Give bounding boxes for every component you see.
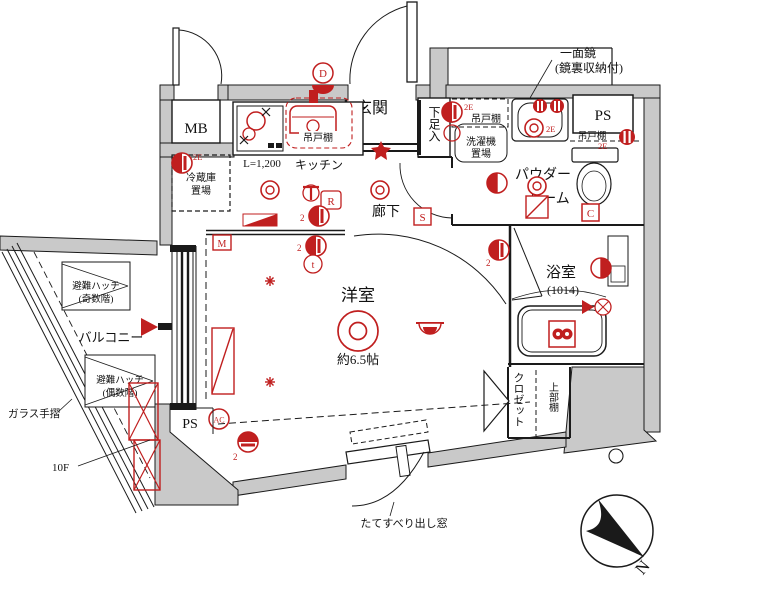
closet-folding-door bbox=[484, 371, 509, 431]
s-mark: S bbox=[419, 212, 425, 224]
fridge-outlet bbox=[172, 153, 192, 173]
wall-mb-top-left bbox=[160, 85, 174, 100]
window-cap-top bbox=[170, 245, 196, 252]
floor-plan: MB 玄関 下足入 廊下 bbox=[0, 0, 766, 612]
hatch-odd: 避難ハッチ (奇数階) bbox=[62, 262, 130, 310]
wall-right bbox=[644, 98, 660, 432]
kitchen-light bbox=[261, 181, 279, 199]
room-outlet-top-group: 2 t bbox=[297, 236, 326, 273]
toilet-outlet-2e: 2E bbox=[598, 141, 607, 151]
ac-unit bbox=[212, 328, 234, 394]
room-outlet-top bbox=[306, 236, 326, 256]
shoe-cabinet-face bbox=[417, 100, 421, 155]
balcony-direction-triangle bbox=[141, 318, 158, 336]
wall-bottom-band-left bbox=[233, 465, 346, 496]
window-cap-bottom bbox=[170, 403, 196, 410]
fridge-outlet-2e: 2E bbox=[193, 152, 202, 162]
kitchen-label: キッチン bbox=[295, 158, 343, 172]
window-dashed-shade bbox=[350, 420, 428, 444]
beam-dashed-line bbox=[218, 402, 530, 424]
window-label-leader bbox=[390, 502, 394, 516]
room-outlet-bottom-count: 2 bbox=[233, 452, 238, 462]
ps-bottom-label: PS bbox=[182, 417, 198, 432]
ceiling-light bbox=[338, 311, 378, 351]
powder-switch-symbol bbox=[526, 196, 548, 218]
wall-left bbox=[160, 85, 172, 245]
wall-neighbor-band bbox=[0, 236, 157, 255]
bathroom: 浴室 (1014) bbox=[508, 225, 644, 367]
room-outlet-bottom-group: 2 bbox=[233, 432, 258, 462]
room-outlet-right bbox=[489, 240, 509, 260]
fire-alarm-2 bbox=[265, 377, 275, 387]
hatch-even: 避難ハッチ (偶数階) bbox=[85, 355, 155, 407]
room-label: 洋室 bbox=[341, 286, 375, 305]
room-outlet-bottom bbox=[238, 432, 258, 452]
corridor-light bbox=[371, 181, 389, 199]
washer-outlet bbox=[442, 102, 462, 122]
ps-pocket: PS bbox=[170, 408, 213, 434]
d-mark: D bbox=[319, 68, 327, 80]
entrance-door-leaf bbox=[407, 2, 417, 82]
laundry-shelf-label: 吊戸棚 bbox=[471, 112, 501, 125]
bath-valve-symbol bbox=[582, 299, 611, 315]
hatch-even-label-1: 避難ハッチ bbox=[96, 374, 144, 386]
room-size-label: 約6.5帖 bbox=[337, 352, 379, 367]
r-mark: R bbox=[327, 196, 335, 208]
glass-rail-label: ガラス手摺 bbox=[8, 407, 60, 420]
toilet-outlet bbox=[619, 129, 635, 145]
counter-length-label: L=1,200 bbox=[243, 158, 281, 170]
powder-room: 吊戸棚 洗濯機 置場 2E 2E パウダー ルーム PS bbox=[442, 45, 644, 225]
basin-outlet-circle bbox=[525, 119, 543, 137]
window-lock bbox=[158, 323, 172, 330]
balcony: 避難ハッチ (奇数階) バルコニー 避難ハッチ (偶数階) ガラス手摺 10F bbox=[2, 243, 160, 513]
powder-light bbox=[528, 177, 546, 195]
room-door-arc bbox=[354, 234, 506, 304]
mb-door-arc bbox=[179, 30, 222, 84]
window-frame bbox=[346, 440, 430, 464]
wall-entry-pillar bbox=[430, 48, 448, 100]
ac-mark: AC bbox=[213, 416, 224, 425]
kitchen-hood-label: 吊戸棚 bbox=[303, 131, 333, 144]
bath-fan-symbol bbox=[549, 321, 575, 347]
mirror-label-2: (鏡裏収納付) bbox=[555, 60, 623, 75]
m-mark: M bbox=[218, 239, 227, 250]
ps-top-label: PS bbox=[595, 108, 612, 124]
kitchen-wedge-mark bbox=[243, 214, 277, 226]
balcony-label: バルコニー bbox=[79, 330, 144, 345]
basin-outlet-2e: 2E bbox=[546, 124, 555, 134]
c-mark: C bbox=[587, 208, 594, 220]
room-outlet-top-count: 2 bbox=[297, 243, 302, 253]
bath-label: 浴室 bbox=[546, 264, 576, 281]
shoe-cabinet-label: 下足入 bbox=[427, 106, 441, 142]
outlet-under-r-count: 2 bbox=[300, 213, 305, 223]
mirror-label-1: 一面鏡 bbox=[560, 45, 596, 60]
tv-outlet-group: R 2 bbox=[300, 185, 341, 226]
t-mark: t bbox=[312, 260, 315, 271]
mb-label: MB bbox=[184, 121, 207, 137]
stove-knob-1 bbox=[268, 143, 274, 148]
wall-light-symbol bbox=[416, 323, 444, 334]
entrance-door-arc bbox=[350, 6, 407, 84]
laundry-label-1: 洗濯機 bbox=[466, 135, 496, 148]
closet-label: クロゼット bbox=[512, 372, 525, 427]
outlet-under-r bbox=[309, 206, 329, 226]
casement-window-label: たてすべり出し窓 bbox=[360, 516, 447, 530]
mb-door-leaf bbox=[173, 28, 179, 85]
western-room: 洋室 約6.5帖 M S R 2 2 t bbox=[206, 185, 530, 462]
stove-knob-2 bbox=[276, 143, 282, 148]
washer-outlet-2e: 2E bbox=[464, 102, 473, 112]
fridge-label-1: 冷蔵庫 bbox=[186, 171, 216, 184]
entrance-door bbox=[350, 2, 417, 84]
laundry-label-2: 置場 bbox=[471, 147, 491, 160]
drain-outlet bbox=[609, 449, 623, 463]
hatch-odd-label-2: (奇数階) bbox=[79, 293, 114, 305]
room-outlet-right-group: 2 bbox=[486, 240, 509, 268]
balcony-window bbox=[158, 245, 196, 410]
floor-label: 10F bbox=[52, 462, 69, 474]
fire-alarm-1 bbox=[265, 276, 275, 286]
upper-shelf-label: 上部棚 bbox=[547, 382, 559, 413]
fridge-label-2: 置場 bbox=[191, 184, 211, 197]
wall-bottom-right-mass bbox=[564, 367, 656, 453]
compass: N bbox=[581, 495, 654, 578]
powder-heater-symbol bbox=[487, 173, 507, 193]
corridor-label: 廊下 bbox=[372, 203, 400, 220]
mb-room: MB bbox=[172, 28, 222, 143]
room-outlet-right-count: 2 bbox=[486, 258, 491, 268]
bath-water-heater-symbol bbox=[591, 258, 611, 278]
glass-rail-leader bbox=[58, 399, 72, 412]
floor-plan-page: MB 玄関 下足入 廊下 bbox=[0, 0, 766, 612]
hatch-odd-label-1: 避難ハッチ bbox=[72, 280, 120, 292]
